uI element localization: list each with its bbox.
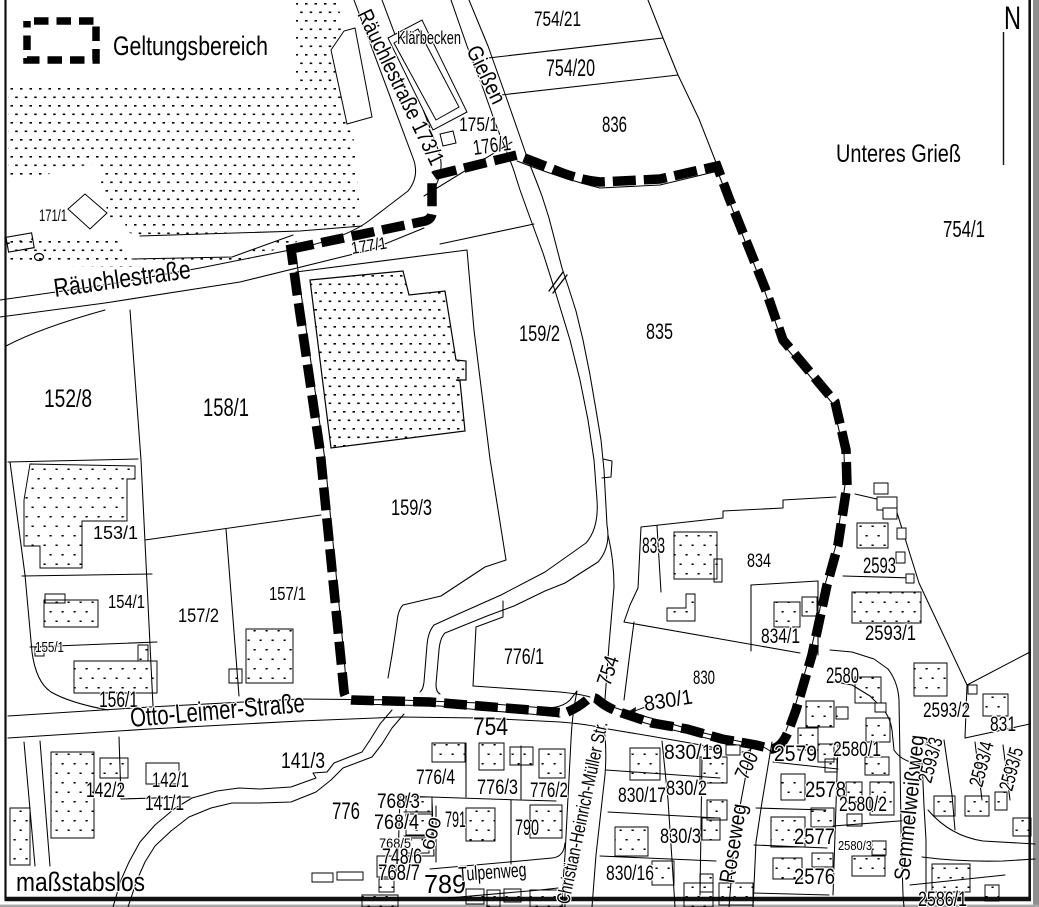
svg-text:142/2: 142/2 bbox=[86, 779, 125, 802]
svg-text:158/1: 158/1 bbox=[203, 394, 249, 422]
svg-text:754: 754 bbox=[473, 713, 508, 741]
svg-text:776/1: 776/1 bbox=[504, 644, 544, 669]
svg-text:830/16: 830/16 bbox=[606, 862, 654, 885]
svg-text:2593: 2593 bbox=[863, 553, 896, 578]
svg-text:171/1: 171/1 bbox=[39, 206, 67, 225]
svg-text:833: 833 bbox=[642, 533, 665, 558]
svg-text:153/1: 153/1 bbox=[93, 523, 138, 543]
svg-text:152/8: 152/8 bbox=[44, 385, 92, 413]
svg-text:830/2: 830/2 bbox=[666, 777, 707, 800]
svg-text:834: 834 bbox=[747, 551, 771, 572]
svg-text:754/21: 754/21 bbox=[534, 8, 581, 31]
svg-text:830/3: 830/3 bbox=[660, 825, 701, 848]
svg-text:2580/1: 2580/1 bbox=[833, 738, 881, 761]
svg-text:830/17: 830/17 bbox=[618, 784, 666, 807]
svg-text:155/1: 155/1 bbox=[35, 639, 64, 656]
svg-text:834/1: 834/1 bbox=[761, 625, 800, 648]
svg-text:754/20: 754/20 bbox=[546, 55, 595, 82]
svg-text:836: 836 bbox=[602, 112, 627, 137]
svg-text:776/2: 776/2 bbox=[530, 779, 568, 802]
svg-text:835: 835 bbox=[646, 319, 673, 344]
svg-text:142/1: 142/1 bbox=[152, 769, 189, 792]
svg-text:159/2: 159/2 bbox=[519, 321, 560, 346]
svg-text:2579: 2579 bbox=[774, 741, 817, 766]
svg-text:2593/2: 2593/2 bbox=[923, 699, 970, 722]
svg-text:830/19: 830/19 bbox=[664, 741, 723, 764]
svg-text:2580/2: 2580/2 bbox=[839, 793, 887, 816]
svg-text:2586/1: 2586/1 bbox=[918, 888, 967, 907]
svg-text:141/3: 141/3 bbox=[281, 748, 325, 773]
svg-text:790: 790 bbox=[515, 815, 539, 840]
svg-text:831: 831 bbox=[990, 713, 1016, 736]
svg-text:791: 791 bbox=[445, 807, 466, 832]
svg-text:2576: 2576 bbox=[794, 864, 835, 889]
svg-text:754/1: 754/1 bbox=[943, 216, 985, 242]
svg-text:830: 830 bbox=[693, 668, 715, 689]
svg-text:157/1: 157/1 bbox=[269, 584, 306, 604]
svg-text:159/3: 159/3 bbox=[391, 495, 432, 520]
svg-text:2580/3: 2580/3 bbox=[838, 838, 872, 853]
svg-text:768/4: 768/4 bbox=[374, 811, 419, 834]
svg-text:776/3: 776/3 bbox=[477, 776, 518, 799]
svg-text:175/1: 175/1 bbox=[459, 115, 498, 136]
svg-text:Geltungsbereich: Geltungsbereich bbox=[113, 31, 268, 61]
svg-text:2593/1: 2593/1 bbox=[865, 622, 916, 645]
svg-text:2580: 2580 bbox=[826, 663, 859, 688]
svg-text:N: N bbox=[1004, 0, 1021, 36]
svg-text:141/1: 141/1 bbox=[145, 792, 184, 815]
svg-text:768/7: 768/7 bbox=[378, 860, 420, 885]
svg-text:Unteres Grieß: Unteres Grieß bbox=[836, 140, 961, 168]
svg-text:776: 776 bbox=[332, 798, 360, 825]
svg-text:maßstabslos: maßstabslos bbox=[16, 867, 145, 897]
svg-text:776/4: 776/4 bbox=[416, 766, 455, 789]
svg-text:157/2: 157/2 bbox=[178, 606, 219, 627]
svg-text:154/1: 154/1 bbox=[108, 592, 145, 612]
svg-text:Klärbecken: Klärbecken bbox=[397, 28, 461, 48]
svg-text:2577: 2577 bbox=[794, 824, 835, 849]
svg-text:768/3: 768/3 bbox=[377, 790, 420, 813]
